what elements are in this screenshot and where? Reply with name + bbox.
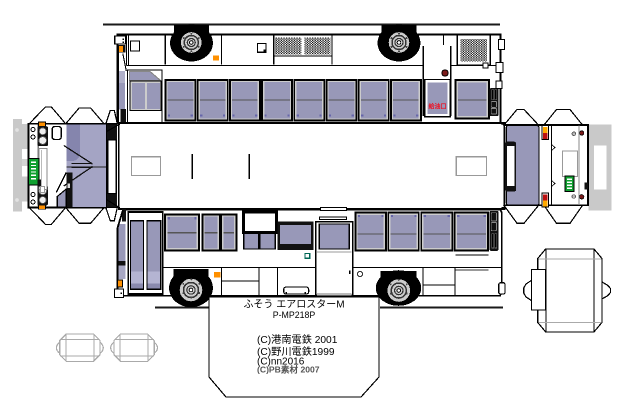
svg-text:P-MP218P: P-MP218P bbox=[273, 310, 316, 320]
svg-text:ふそう エアロスターM: ふそう エアロスターM bbox=[243, 299, 344, 311]
svg-text:(C)港南電鉄 2001: (C)港南電鉄 2001 bbox=[257, 333, 338, 346]
svg-text:(C)PB素材 2007: (C)PB素材 2007 bbox=[257, 364, 320, 375]
svg-text:給油口: 給油口 bbox=[428, 103, 446, 111]
